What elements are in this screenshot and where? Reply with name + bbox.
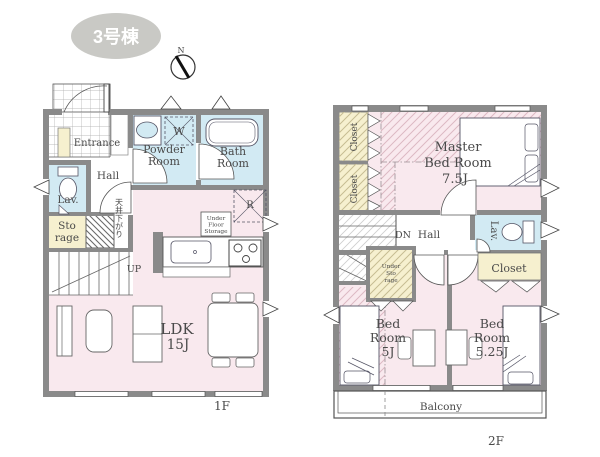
label-master-3: 7.5J <box>442 172 468 187</box>
label-bed5-1: Bed <box>376 316 401 331</box>
dining-set <box>208 293 258 367</box>
label-ldk-2: 15J <box>167 337 190 353</box>
label-lav-2f: Lav. <box>488 221 499 241</box>
label-ufs-3: Storage <box>204 229 228 235</box>
label-ufs-1: Under <box>207 216 226 222</box>
label-closet-c: Closet <box>491 262 527 275</box>
label-balcony: Balcony <box>420 401 462 413</box>
label-master-2: Bed Room <box>424 156 491 171</box>
label-closet-a: Closet <box>350 122 360 151</box>
label-dn: DN <box>395 230 411 241</box>
label-master-1: Master <box>435 140 483 155</box>
label-ufs-2: Floor <box>208 223 224 229</box>
floor1-plan: Entrance Hall Powder Room Bath Room W La… <box>34 84 278 413</box>
floor1-name: 1F <box>214 399 230 413</box>
label-bed525-2: Room <box>474 330 510 345</box>
label-ceiling-note: 天井下がり <box>115 198 124 238</box>
label-hall-2f: Hall <box>418 229 441 241</box>
stove <box>229 240 261 266</box>
label-storage-1: Sto <box>58 220 76 232</box>
label-powder-2: Room <box>148 155 181 168</box>
badge-label: 3号棟 <box>93 26 140 47</box>
floorplan-page: 3号棟 N <box>0 0 600 457</box>
label-closet-b: Closet <box>350 174 360 203</box>
label-lav-1f: Lav. <box>57 194 78 206</box>
label-storage2f-2: Sto <box>386 271 396 277</box>
powder-vanity <box>134 116 161 145</box>
sofa-shelf <box>133 306 162 362</box>
label-bath-2: Room <box>217 157 250 170</box>
tv-board <box>57 306 72 356</box>
coffee-table <box>86 310 112 352</box>
compass-icon: N <box>171 46 195 79</box>
label-storage-2: rage <box>55 232 79 244</box>
shoe-cabinet <box>58 128 70 157</box>
label-ldk-1: LDK <box>160 320 194 338</box>
floor2-name: 2F <box>488 434 504 448</box>
label-storage2f-1: Under <box>382 264 401 270</box>
label-washer: W <box>173 125 185 138</box>
label-hall-1f: Hall <box>97 170 120 182</box>
label-up: UP <box>127 264 142 275</box>
label-bed525-1: Bed <box>480 316 505 331</box>
label-bed5-3: 5J <box>382 344 395 359</box>
stairs-1f-floor <box>49 252 133 295</box>
label-fridge: R <box>246 200 254 211</box>
compass-north-label: N <box>178 46 185 55</box>
bathtub <box>206 119 258 146</box>
label-bed525-3: 5.25J <box>476 344 509 359</box>
label-bed5-2: Room <box>370 330 406 345</box>
floor2-plan: Master Bed Room 7.5J Closet Closet DN Ha… <box>324 105 559 448</box>
label-entrance: Entrance <box>74 138 121 149</box>
floorplan-drawing: 3号棟 N <box>0 0 600 457</box>
building-badge: 3号棟 <box>71 13 161 59</box>
lowered-ceiling-area <box>86 214 114 248</box>
label-storage2f-3: rage <box>384 278 398 284</box>
